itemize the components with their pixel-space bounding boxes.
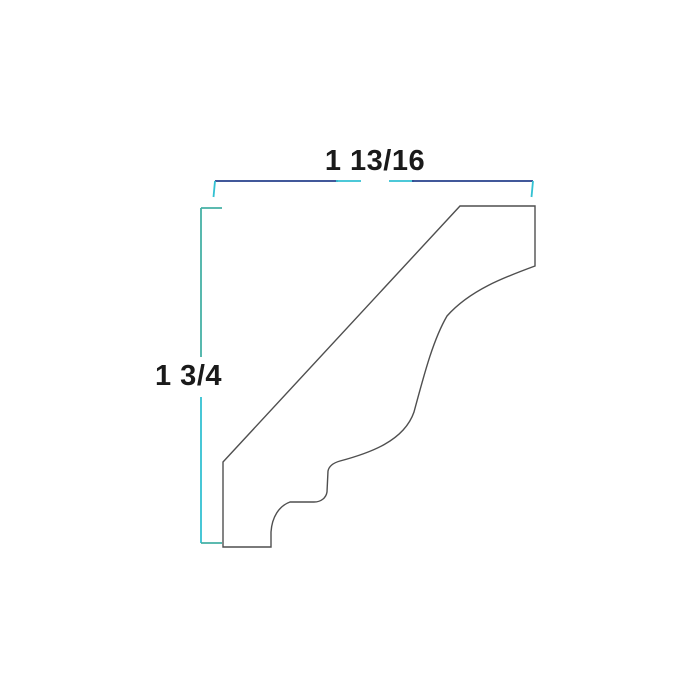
molding-dimension-diagram: 1 13/16 1 3/4 <box>0 0 700 700</box>
height-dimension-label: 1 3/4 <box>120 362 222 391</box>
width-dimension-tick-right <box>532 181 534 197</box>
width-dimension-tick-left <box>214 181 216 197</box>
width-dimension-label: 1 13/16 <box>275 147 475 176</box>
molding-profile-outline <box>223 206 535 547</box>
diagram-canvas <box>0 0 700 700</box>
